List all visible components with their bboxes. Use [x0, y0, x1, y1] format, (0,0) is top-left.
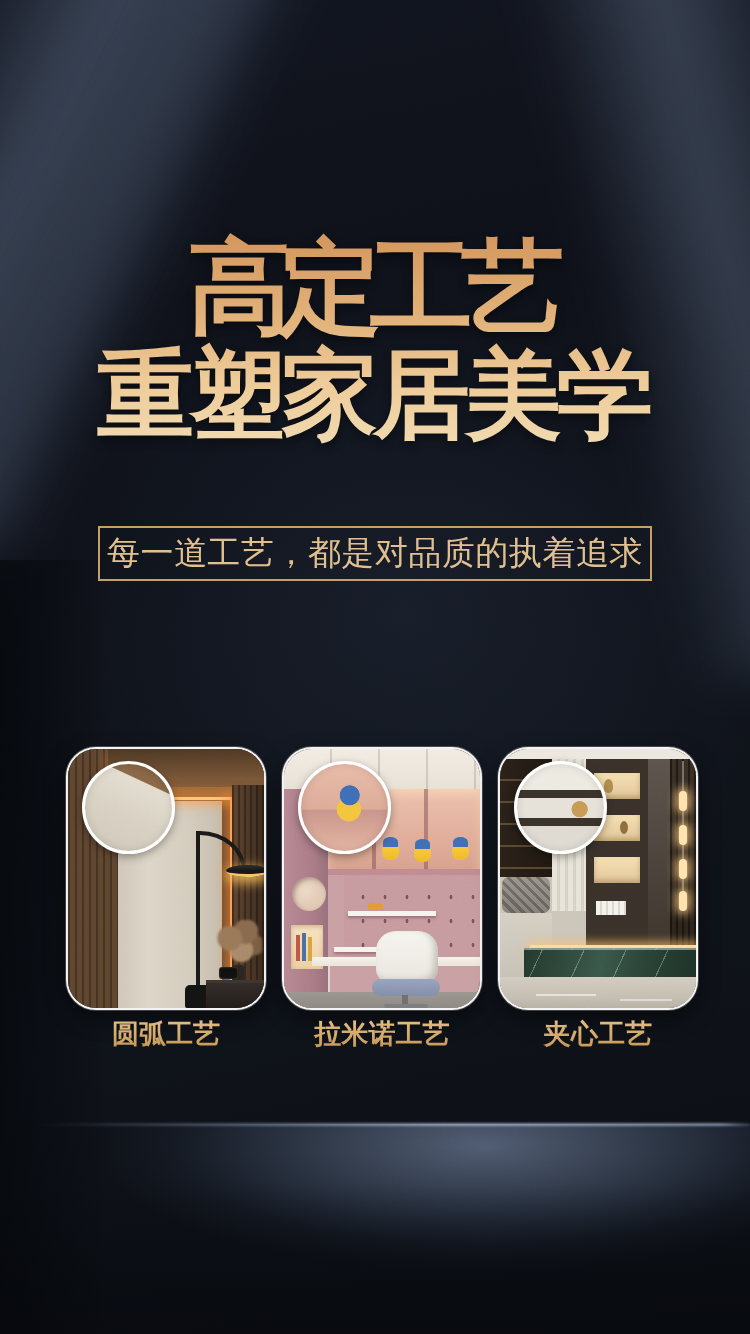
page-title: 高定工艺 重塑家居美学: [0, 233, 750, 447]
card-label-arc: 圆弧工艺: [66, 1016, 266, 1052]
toy-car: [368, 903, 383, 910]
round-cutout-niche: [292, 877, 326, 911]
lit-shelf-niche: [594, 857, 640, 883]
pendant-bulb: [679, 825, 687, 845]
pikachu-toy: [382, 841, 399, 860]
tagline-text: 每一道工艺，都是对品质的执着追求: [107, 531, 643, 576]
book-spine: [302, 933, 306, 961]
ceiling: [500, 749, 696, 759]
title-line-2: 重塑家居美学: [0, 343, 750, 447]
wall-shelf: [348, 911, 436, 916]
kids-study-scene: [284, 749, 480, 1008]
magnifier-circle-icon: [514, 761, 607, 854]
pikachu-toy: [452, 841, 469, 860]
background-gradient: [0, 0, 750, 1334]
floor-reflection: [536, 994, 596, 996]
floor-reflection: [620, 999, 672, 1001]
magnifier-circle-icon: [82, 761, 175, 854]
green-marble-base: [524, 948, 696, 977]
floor-lamp-shade: [226, 865, 266, 877]
craft-card-lamello[interactable]: [282, 747, 482, 1010]
title-line-1: 高定工艺: [0, 233, 750, 343]
magnifier-circle-icon: [298, 761, 391, 854]
showroom-floor: [500, 977, 696, 1008]
card-label-sandwich: 夹心工艺: [498, 1016, 698, 1052]
book-spine: [296, 935, 300, 961]
decor-vase: [604, 779, 613, 793]
desk-chair-seat: [372, 979, 440, 996]
desk-chair-back: [376, 931, 438, 983]
alarm-clock: [219, 967, 238, 979]
pendant-bulb: [679, 891, 687, 911]
sofa: [502, 877, 550, 913]
bedroom-scene: [68, 749, 264, 1008]
tagline-box: 每一道工艺，都是对品质的执着追求: [98, 526, 652, 581]
floor-lamp-pole: [196, 833, 200, 991]
pendant-bulb: [679, 791, 687, 811]
craft-card-sandwich[interactable]: [498, 747, 698, 1010]
chair-base: [384, 1004, 428, 1008]
pikachu-toy: [414, 843, 431, 862]
floor-light-line: [30, 1123, 750, 1126]
card-label-lamello: 拉米诺工艺: [282, 1016, 482, 1052]
pendant-bulb: [679, 859, 687, 879]
craft-card-arc[interactable]: [66, 747, 266, 1010]
bottom-vignette: [0, 1184, 750, 1334]
showroom-scene: [500, 749, 696, 1008]
promo-poster: 高定工艺 重塑家居美学 每一道工艺，都是对品质的执着追求: [0, 0, 750, 1334]
decor-vase: [620, 821, 628, 834]
fabric-panel: [648, 759, 670, 947]
decor-books: [596, 901, 626, 915]
